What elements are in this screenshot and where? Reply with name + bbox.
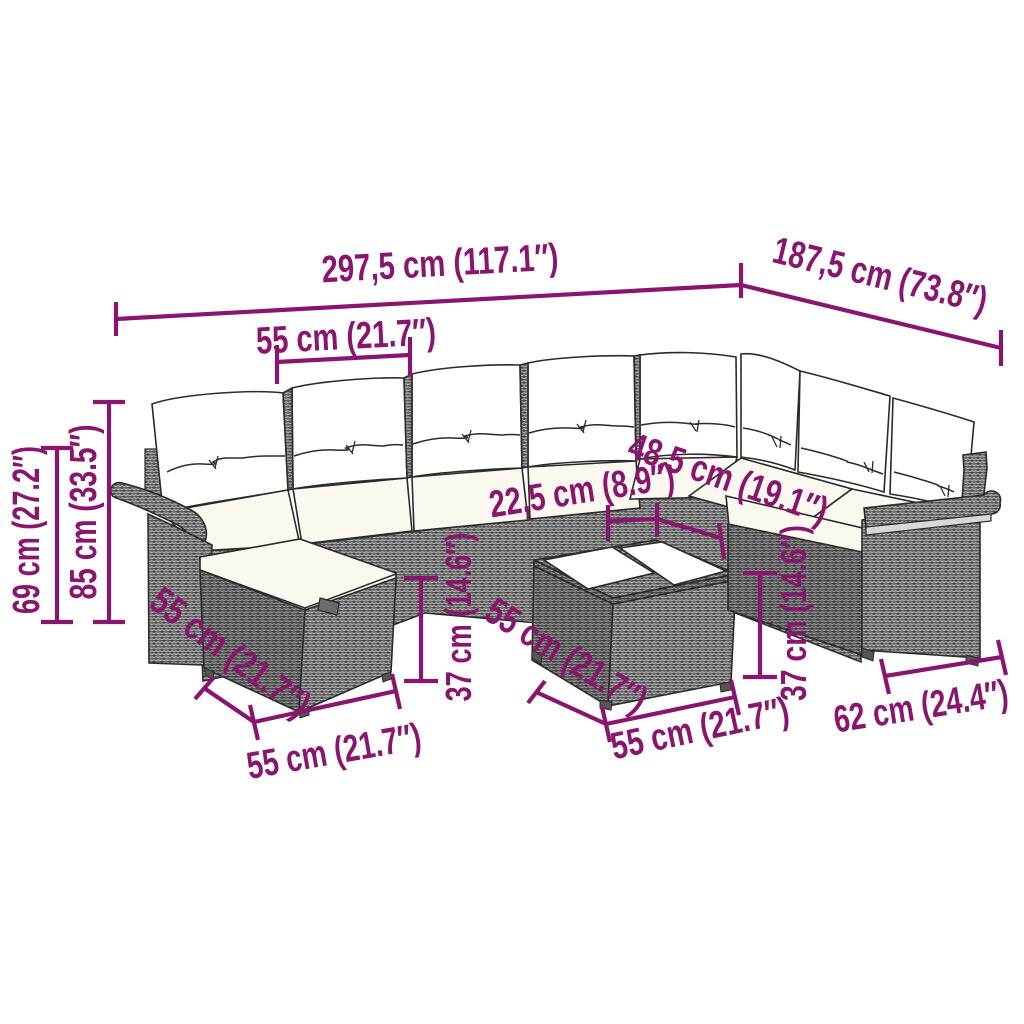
- svg-text:37 cm (14.6″): 37 cm (14.6″): [773, 525, 814, 701]
- svg-text:85 cm (33.5″): 85 cm (33.5″): [63, 425, 105, 600]
- svg-text:69 cm (27.2″): 69 cm (27.2″): [6, 446, 48, 614]
- svg-text:37 cm (14.6″): 37 cm (14.6″): [438, 533, 479, 702]
